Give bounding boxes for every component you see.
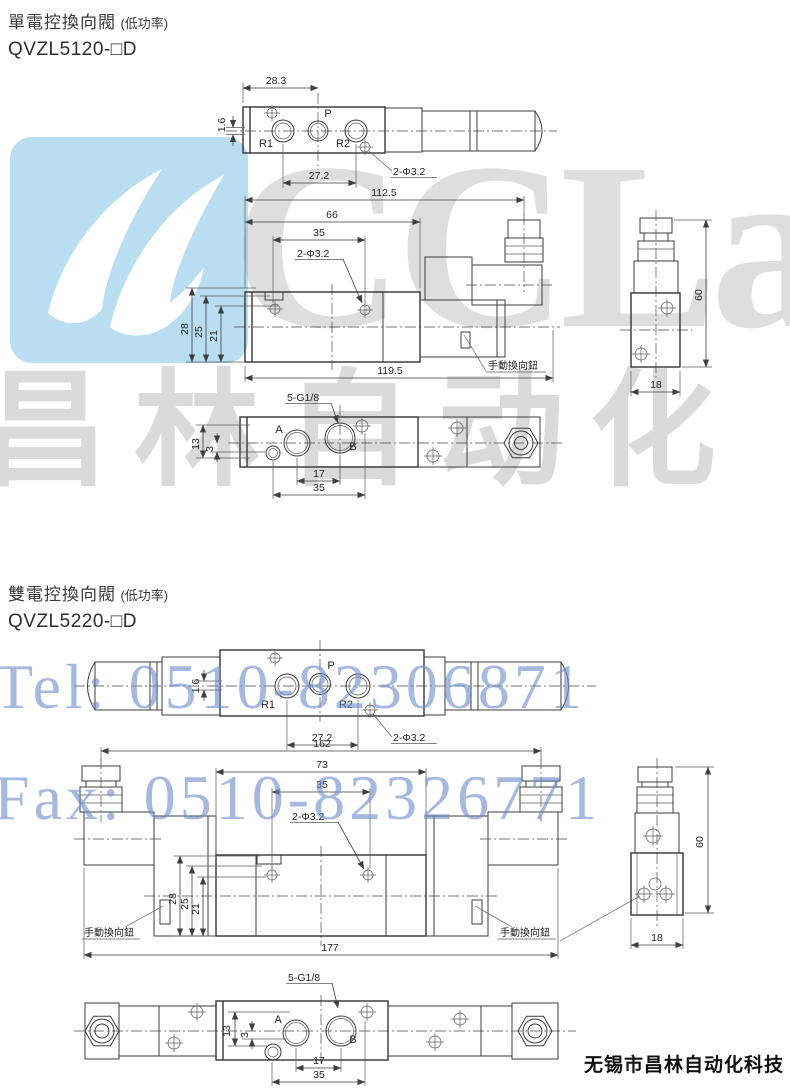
dim-label-60: 60	[693, 289, 705, 301]
s1-bottom-view: 5-G1/8 13 3 17 35 A B	[190, 392, 562, 499]
dim-label-73: 73	[316, 759, 328, 771]
s1-drawing: 28.3 1.6 27.2 2-Φ3.2 R1 P R2	[0, 60, 790, 520]
dim-label-17-b: 17	[313, 1055, 325, 1067]
s2-front-view: 162 73 35 2-Φ3.2 28 25 21 177	[74, 738, 640, 959]
port-label-b-b: B	[349, 1034, 356, 1046]
dim-label-119-5: 119.5	[377, 365, 403, 377]
section2-model: QVZL5220-□D	[8, 611, 168, 633]
dim-label-112-5: 112.5	[371, 187, 397, 199]
dim-label-35c: 35	[313, 1069, 325, 1081]
s2-side-view: 60 18	[631, 758, 714, 949]
s1-top-view: 28.3 1.6 27.2 2-Φ3.2 R1 P R2	[216, 75, 557, 188]
dim-label-18-b: 18	[651, 932, 663, 944]
port-label-a-b: A	[274, 1014, 282, 1026]
dim-label-3: 3	[204, 446, 216, 452]
section1-title-block: 單電控換向閥 (低功率) QVZL5120-□D	[8, 8, 168, 61]
dim-label-holes-top: 2-Φ3.2	[393, 166, 425, 178]
dim-label-28-b: 28	[167, 893, 179, 905]
port-label-r1: R1	[259, 138, 273, 150]
port-label-a: A	[275, 424, 283, 436]
dim-label-35: 35	[313, 227, 325, 239]
section1-title: 單電控換向閥	[8, 13, 116, 32]
dim-label-28-3: 28.3	[266, 75, 287, 87]
s2-top-view: 1.6 27.2 2-Φ3.2 R1 P R2	[74, 640, 596, 750]
dim-label-28: 28	[179, 323, 191, 335]
section2-power-note: (低功率)	[120, 588, 168, 603]
port-label-r2-b: R2	[339, 699, 353, 711]
manual-override-label-right: 手動換向鈕	[500, 926, 550, 939]
dim-label-thread: 5-G1/8	[287, 392, 319, 404]
dim-label-1-6-b: 1.6	[190, 679, 202, 694]
section2-title: 雙電控換向閥	[8, 585, 116, 604]
dim-label-13-b: 13	[221, 1025, 233, 1037]
dim-label-21-b: 21	[190, 903, 202, 915]
dim-label-177: 177	[321, 942, 339, 954]
dim-label-3-b: 3	[239, 1032, 251, 1038]
port-label-p: P	[324, 108, 331, 120]
dim-label-holes-front-b: 2-Φ3.2	[292, 811, 324, 823]
s2-bottom-view: 5-G1/8 13 3 17 35 A B	[74, 972, 576, 1086]
dim-label-thread-b: 5-G1/8	[288, 972, 320, 984]
manual-override-label-left: 手動換向鈕	[84, 926, 134, 939]
section1-power-note: (低功率)	[120, 16, 168, 31]
s1-side-view: 60 18	[620, 210, 712, 396]
dim-label-holes-front: 2-Φ3.2	[297, 248, 329, 260]
s1-front-view: 112.5 66 35 2-Φ3.2 28 25 21 119.5	[179, 187, 560, 382]
dim-label-18: 18	[650, 379, 662, 391]
section2-title-block: 雙電控換向閥 (低功率) QVZL5220-□D	[8, 580, 168, 633]
dim-label-35b: 35	[313, 482, 325, 494]
dim-label-27-2: 27.2	[309, 170, 330, 182]
dim-label-21: 21	[208, 330, 220, 342]
dim-label-35-b: 35	[316, 779, 328, 791]
dim-label-13: 13	[190, 438, 202, 450]
dim-label-17: 17	[313, 468, 325, 480]
dim-label-162: 162	[313, 738, 331, 750]
dim-label-66: 66	[326, 209, 338, 221]
port-label-r1-b: R1	[261, 699, 275, 711]
port-label-r2: R2	[336, 138, 350, 150]
dim-label-1-6: 1.6	[216, 118, 228, 133]
dim-label-25: 25	[193, 326, 205, 338]
dim-label-holes-top-b: 2-Φ3.2	[393, 732, 425, 744]
manual-override-label: 手動換向鈕	[488, 359, 538, 372]
port-label-p-b: P	[327, 660, 334, 672]
s2-drawing: 1.6 27.2 2-Φ3.2 R1 P R2	[0, 630, 790, 1088]
footer-company-name: 无锡市昌林自动化科技	[584, 1050, 784, 1077]
datasheet-page: CCLair 昌林自动化 Tel: 0510-82306871 Fax: 051…	[0, 0, 790, 1088]
dim-label-60-b: 60	[694, 836, 706, 848]
section1-model: QVZL5120-□D	[8, 39, 168, 61]
port-label-b: B	[349, 441, 356, 453]
